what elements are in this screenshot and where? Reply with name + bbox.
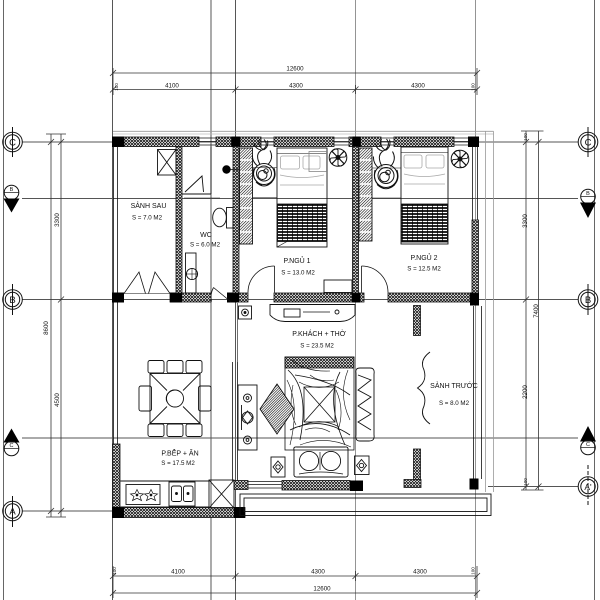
svg-text:A: A [9, 507, 16, 518]
svg-text:B: B [10, 187, 14, 193]
svg-text:100: 100 [471, 567, 476, 575]
svg-text:7400: 7400 [533, 304, 540, 318]
svg-text:P.KHÁCH + THỜ: P.KHÁCH + THỜ [292, 329, 345, 338]
svg-text:100: 100 [114, 83, 119, 91]
svg-text:S = 6.0 M2: S = 6.0 M2 [190, 242, 221, 249]
svg-text:S = 23.5 M2: S = 23.5 M2 [300, 343, 334, 350]
svg-text:P.BỄP + ĂN: P.BỄP + ĂN [161, 449, 198, 458]
svg-text:3300: 3300 [54, 213, 61, 227]
svg-text:C: C [585, 138, 592, 149]
svg-text:S = 13.0 M2: S = 13.0 M2 [281, 270, 315, 277]
svg-text:3300: 3300 [522, 214, 529, 228]
svg-text:4300: 4300 [411, 83, 425, 90]
svg-text:P.NGỦ 1: P.NGỦ 1 [283, 256, 310, 265]
svg-text:100: 100 [471, 83, 476, 91]
svg-text:S = 7.0 M2: S = 7.0 M2 [132, 215, 163, 222]
svg-text:B: B [585, 295, 591, 306]
svg-text:4500: 4500 [54, 393, 61, 407]
svg-text:B: B [9, 295, 15, 306]
svg-text:4300: 4300 [311, 569, 325, 576]
svg-text:A': A' [584, 482, 592, 492]
svg-text:8600: 8600 [43, 321, 50, 335]
svg-text:C: C [9, 138, 16, 149]
svg-text:4100: 4100 [171, 569, 185, 576]
svg-text:4300: 4300 [289, 83, 303, 90]
svg-text:SẢNH SAU: SẢNH SAU [131, 201, 167, 210]
svg-text:4300: 4300 [413, 569, 427, 576]
svg-text:4100: 4100 [165, 83, 179, 90]
svg-text:C: C [586, 442, 590, 448]
svg-text:12600: 12600 [286, 66, 304, 73]
svg-text:WC: WC [200, 232, 212, 239]
svg-text:2200: 2200 [522, 385, 529, 399]
svg-text:100: 100 [523, 133, 528, 141]
svg-text:100: 100 [112, 567, 117, 575]
svg-text:B: B [586, 191, 590, 197]
svg-text:S = 12.5 M2: S = 12.5 M2 [407, 266, 441, 273]
svg-text:P.NGỦ 2: P.NGỦ 2 [410, 253, 437, 262]
svg-text:SẢNH TRƯỚC: SẢNH TRƯỚC [430, 381, 478, 390]
svg-text:S = 8.0 M2: S = 8.0 M2 [439, 400, 470, 407]
svg-text:C: C [10, 443, 14, 449]
svg-text:12600: 12600 [313, 586, 331, 593]
svg-text:100: 100 [523, 478, 528, 486]
svg-text:S = 17.5 M2: S = 17.5 M2 [161, 460, 195, 467]
